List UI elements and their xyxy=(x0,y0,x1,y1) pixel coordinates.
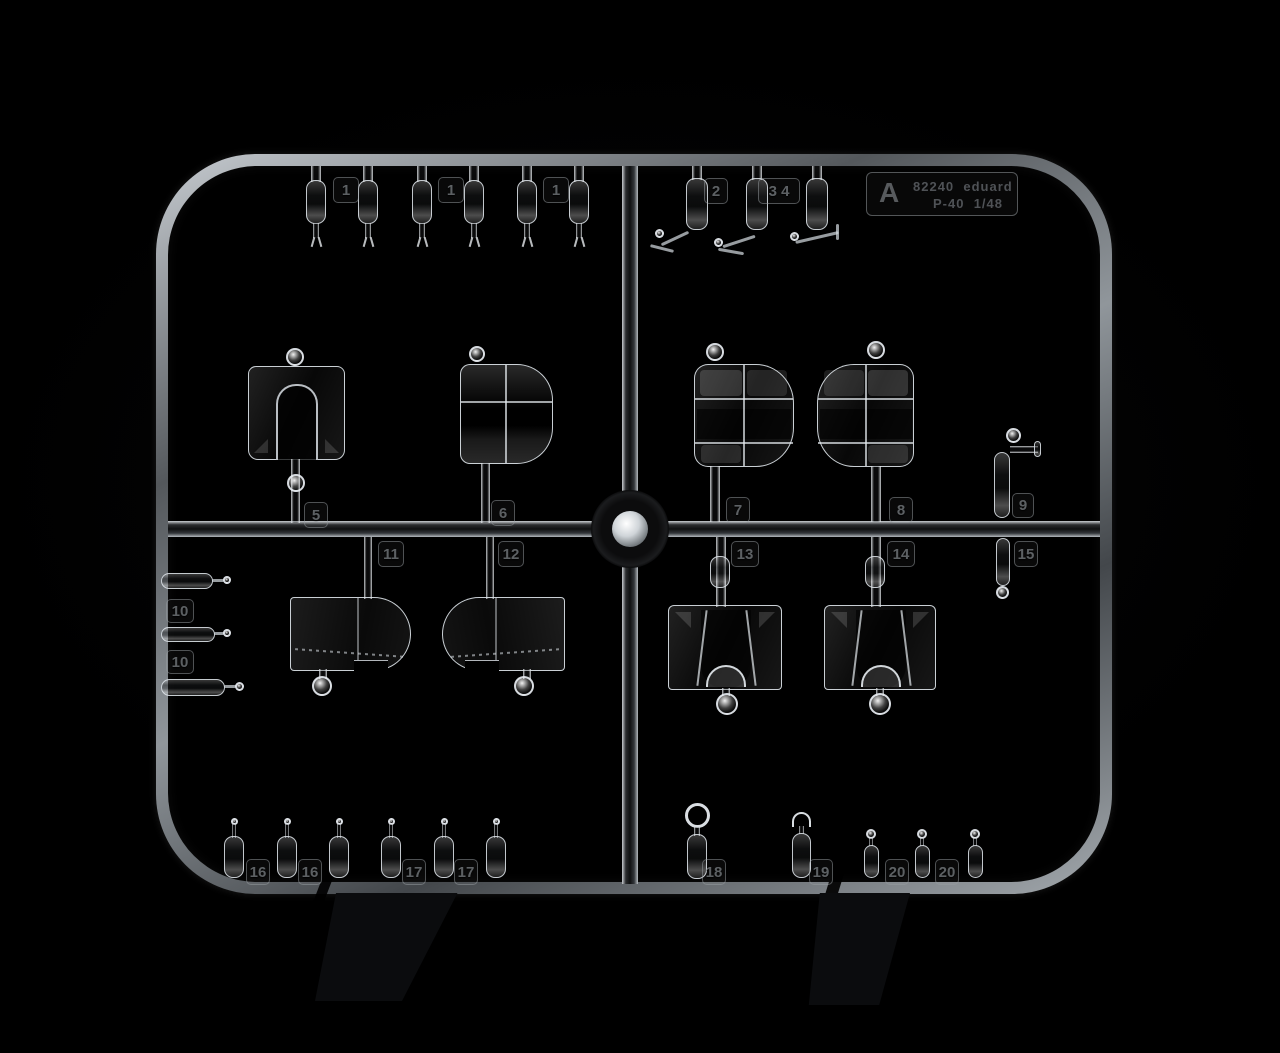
part-neck xyxy=(419,223,425,238)
part-number-tag-19: 19 xyxy=(809,859,833,885)
stand-shadow-wedge xyxy=(315,893,465,1001)
part-number-tag-14: 14 xyxy=(887,541,915,567)
clear-part-small-1 xyxy=(569,180,589,224)
sprue-gate-ball xyxy=(286,348,304,366)
clear-part-barrel-10 xyxy=(161,573,213,589)
clear-part-20 xyxy=(915,845,930,878)
canopy-frame-line xyxy=(743,365,745,466)
clear-part-rear-canopy-14 xyxy=(824,605,936,690)
clear-part-20 xyxy=(968,845,983,878)
part-number-tag-11: 11 xyxy=(378,541,404,567)
part-number-tag-1: 1 xyxy=(438,177,464,203)
canopy-frosted-panel xyxy=(868,445,908,463)
brand-name: eduard xyxy=(963,179,1012,194)
clear-part-9 xyxy=(994,452,1010,518)
windscreen-arch-frame xyxy=(276,384,318,460)
clear-part-16 xyxy=(277,836,297,878)
barrel-pin-tip xyxy=(223,629,231,637)
window-notch xyxy=(465,660,499,672)
part-number-tag-20: 20 xyxy=(885,859,909,885)
clear-part-canopy-8 xyxy=(817,364,914,467)
scale-label: 1/48 xyxy=(974,196,1003,211)
part-number-tag-18: 18 xyxy=(702,859,726,885)
gate-stem xyxy=(364,537,372,599)
barrel-pin-tip xyxy=(235,682,244,691)
windscreen-corner xyxy=(254,439,268,453)
sprue-gate-ball xyxy=(312,676,332,696)
clear-part-17 xyxy=(381,836,401,878)
part-number-tag-10: 10 xyxy=(166,599,194,623)
small-sight-ring xyxy=(714,238,723,247)
clear-part-windscreen-5 xyxy=(248,366,345,460)
canopy-frame-line xyxy=(505,365,507,463)
canopy-frosted-panel xyxy=(700,370,742,396)
clear-part-rear-canopy-13 xyxy=(668,605,782,690)
barrel-pin-tip xyxy=(223,576,231,584)
clear-part-side-window-11 xyxy=(290,597,411,671)
clear-part-barrel-10 xyxy=(161,627,215,642)
sprue-gate-ball xyxy=(867,341,885,359)
clear-part-20 xyxy=(864,845,879,878)
canopy-corner xyxy=(831,612,847,628)
part-number-tag-16: 16 xyxy=(298,859,322,885)
sprue-gate-ball xyxy=(287,474,305,492)
part-number-tag-1: 1 xyxy=(543,177,569,203)
part-number-tag-5: 5 xyxy=(304,502,328,528)
sprue-gate-ball xyxy=(996,586,1009,599)
clear-part-17 xyxy=(434,836,454,878)
canopy-frame-line xyxy=(461,401,552,403)
sprue-letter: A xyxy=(879,177,899,209)
window-dotted-line xyxy=(295,648,405,658)
clear-part-canopy-7 xyxy=(694,364,794,467)
canopy-corner xyxy=(759,612,775,628)
sprue-photo: 1 1 1 2 3 4 A 82240 eduard P-40 1/48 5 xyxy=(0,0,1280,1053)
clear-part-17 xyxy=(486,836,506,878)
sprue-gate-ball xyxy=(716,693,738,715)
sprue-gate-ball xyxy=(869,693,891,715)
part-fork-tip xyxy=(573,237,586,247)
part-neck xyxy=(313,223,319,238)
clear-part-4 xyxy=(806,178,828,230)
part-number-tag-1: 1 xyxy=(333,177,359,203)
clear-part-hook-19 xyxy=(792,812,811,827)
part-neck xyxy=(471,223,477,238)
stand-shadow-wedge xyxy=(800,893,910,1005)
part-number-tag-2: 2 xyxy=(704,178,728,204)
small-sight-ring xyxy=(655,229,664,238)
gate-stem xyxy=(486,537,494,599)
gate-stem-blob xyxy=(710,556,730,588)
canopy-frame-line xyxy=(865,365,867,466)
part-number-tag-17: 17 xyxy=(402,859,426,885)
part-number-tag-20: 20 xyxy=(935,859,959,885)
lever-arm-tip xyxy=(1034,441,1041,457)
clear-part-small-1 xyxy=(464,180,484,224)
window-notch xyxy=(354,660,388,672)
part-number-tag-16: 16 xyxy=(246,859,270,885)
part-number-tag-8: 8 xyxy=(889,497,913,523)
clear-part-16 xyxy=(224,836,244,878)
small-sight-ring xyxy=(790,232,799,241)
clear-part-side-window-12 xyxy=(442,597,565,671)
part-number-tag-3-4: 3 4 xyxy=(758,178,800,204)
clear-part-small-1 xyxy=(517,180,537,224)
clear-part-small-1 xyxy=(306,180,326,224)
window-dotted-line xyxy=(451,648,561,658)
part-neck xyxy=(524,223,530,238)
canopy-frosted-panel xyxy=(701,445,741,463)
clear-part-small-1 xyxy=(412,180,432,224)
canopy-corner xyxy=(913,612,929,628)
part-number-tag-15: 15 xyxy=(1014,541,1038,567)
part-fork-tip xyxy=(362,237,375,247)
sprue-gate-ball xyxy=(469,346,485,362)
injection-hub-core xyxy=(612,511,648,547)
sprue-gate-ball xyxy=(1006,428,1021,443)
canopy-frosted-panel xyxy=(868,370,908,396)
clear-part-16 xyxy=(329,836,349,878)
part-fork-tip xyxy=(468,237,481,247)
sprue-gate-ball xyxy=(706,343,724,361)
part-fork-tip xyxy=(521,237,534,247)
part-number-tag-12: 12 xyxy=(498,541,524,567)
clear-part-15 xyxy=(996,538,1010,586)
part-fork-tip xyxy=(310,237,323,247)
clear-part-canopy-6 xyxy=(460,364,553,464)
part-number-tag-10: 10 xyxy=(166,650,194,674)
gate-stem-blob xyxy=(865,556,885,588)
part-number-tag-7: 7 xyxy=(726,497,750,523)
part-fork-tip xyxy=(416,237,429,247)
canopy-corner xyxy=(675,612,691,628)
clear-part-small-1 xyxy=(358,180,378,224)
part-number-tag-9: 9 xyxy=(1012,493,1034,518)
pitot-part-crossbar xyxy=(836,224,839,240)
clear-part-barrel xyxy=(161,679,225,696)
aircraft-name: P-40 xyxy=(933,196,964,211)
part-neck xyxy=(576,223,582,238)
windscreen-corner xyxy=(325,439,339,453)
gate-stem xyxy=(710,466,720,522)
gate-stem xyxy=(871,466,881,522)
sprue-info-plate: A 82240 eduard P-40 1/48 xyxy=(866,172,1018,216)
gate-stem xyxy=(481,463,490,523)
kit-number: 82240 xyxy=(913,179,954,194)
canopy-frosted-panel xyxy=(747,370,787,396)
part-number-tag-13: 13 xyxy=(731,541,759,567)
sprue-gate-ball xyxy=(514,676,534,696)
part-number-tag-6: 6 xyxy=(491,500,515,526)
canopy-frosted-panel xyxy=(824,370,864,396)
part-neck xyxy=(365,223,371,238)
part-number-tag-17: 17 xyxy=(454,859,478,885)
clear-part-ring-18 xyxy=(685,803,710,828)
